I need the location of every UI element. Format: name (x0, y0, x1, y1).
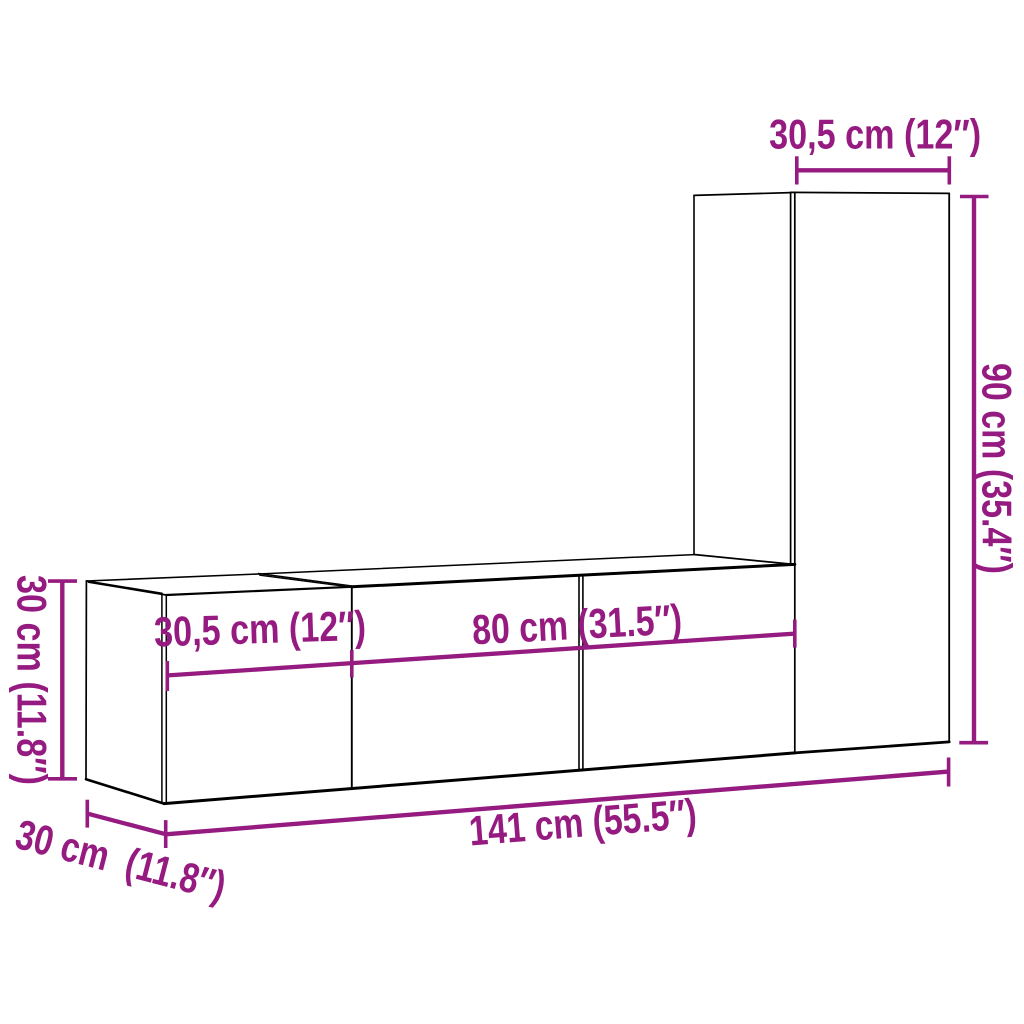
svg-text:30 cm (11.8″): 30 cm (11.8″) (8, 575, 55, 785)
svg-text:90 cm (35.4″): 90 cm (35.4″) (974, 363, 1021, 574)
svg-text:30,5 cm (12″): 30,5 cm (12″) (769, 111, 981, 158)
svg-text:30,5 cm (12″): 30,5 cm (12″) (153, 602, 366, 656)
